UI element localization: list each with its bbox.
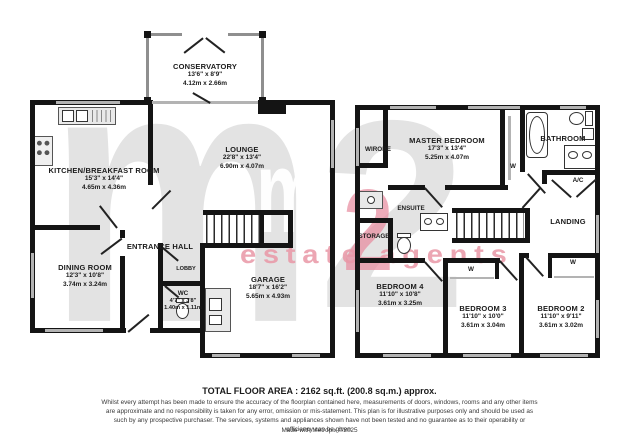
label-bedroom3-wardrobe: W [468, 266, 474, 274]
window [356, 290, 359, 332]
cistern [585, 111, 593, 126]
post [144, 97, 151, 104]
wall [443, 258, 500, 263]
basin-icon [568, 151, 578, 159]
toilet-icon [397, 237, 411, 254]
window [596, 215, 599, 253]
wall [452, 208, 530, 213]
window [596, 300, 599, 338]
window [383, 354, 431, 357]
window [540, 354, 588, 357]
room-label-bedroom3: BEDROOM 3 11'10" x 10'0" 3.61m x 3.04m [459, 304, 506, 330]
room-label-storage: STORAGE [358, 233, 389, 241]
room-label-kitchen: KITCHEN/BREAKFAST ROOM 15'3" x 14'4" 4.6… [48, 166, 159, 192]
wall [30, 225, 100, 230]
window [45, 329, 103, 332]
toilet-icon [569, 112, 584, 125]
post [259, 31, 266, 38]
fireplace [258, 105, 286, 114]
wall [443, 258, 448, 358]
wall [158, 243, 163, 333]
room-label-lobby: LOBBY [176, 266, 196, 273]
room-label-airing-cupboard: A/C [573, 177, 584, 185]
room-label-conservatory: CONSERVATORY 13'6" x 8'9" 4.12m x 2.66m [173, 62, 237, 88]
metropix-credit: Made with Metropix ©2025 [0, 427, 639, 434]
window [463, 354, 511, 357]
window [356, 128, 359, 166]
garage-door [292, 354, 320, 357]
wall [519, 253, 524, 358]
sink-icon [76, 110, 88, 122]
basin-icon [582, 151, 592, 159]
total-floor-area: TOTAL FLOOR AREA : 2162 sq.ft. (200.8 sq… [0, 386, 639, 396]
wall [158, 328, 205, 333]
basin-icon [436, 218, 444, 225]
garage-door [212, 354, 240, 357]
wall [203, 210, 293, 215]
window [56, 101, 120, 104]
room-label-entrance-hall: ENTRANCE HALL [127, 242, 193, 251]
stairs-icon [456, 213, 524, 238]
wall [120, 256, 125, 333]
room-label-dining: DINING ROOM 12'3" x 10'8" 3.74m x 3.24m [58, 263, 112, 289]
door [522, 188, 541, 208]
wall [120, 230, 125, 238]
wall [548, 257, 552, 278]
wall [445, 185, 508, 190]
window [468, 106, 520, 109]
wall [542, 170, 547, 184]
room-label-bedroom2: BEDROOM 2 11'10" x 9'11" 3.61m x 3.02m [537, 304, 584, 330]
wall [383, 105, 388, 167]
room-label-bedroom4: BEDROOM 4 11'10" x 10'8" 3.61m x 3.25m [376, 282, 423, 308]
wall [203, 243, 293, 248]
wall [546, 170, 600, 175]
room-label-wc: WC 4'7" x 3'8" 1.40m x 1.11m [164, 290, 202, 312]
room-label-lounge: LOUNGE 22'8" x 13'4" 6.90m x 4.07m [220, 145, 264, 171]
hob-icon [33, 136, 53, 166]
post [144, 31, 151, 38]
door [551, 179, 571, 198]
wall [452, 238, 530, 243]
conservatory-wall [146, 33, 149, 103]
door-opening [182, 32, 228, 37]
label-bedroom2-wardrobe: W [570, 259, 576, 267]
sink-icon [209, 315, 222, 325]
wall [355, 258, 425, 263]
window [31, 253, 34, 298]
door [525, 256, 544, 276]
watermark-2-overlay: 2 [343, 172, 393, 288]
basin-icon [424, 218, 432, 225]
wall [525, 208, 530, 243]
wall [355, 218, 390, 223]
sink-icon [209, 298, 222, 311]
post [259, 97, 266, 104]
wall [520, 110, 525, 172]
wall [495, 262, 499, 279]
room-label-bathroom: BATHROOM [540, 134, 585, 143]
room-label-master-bedroom: MASTER BEDROOM 17'3" x 13'4" 5.25m x 4.0… [409, 136, 485, 162]
window [390, 106, 436, 109]
window [560, 106, 586, 109]
wardrobe-doors [450, 277, 494, 279]
floorplan-canvas: m 2 m 2 estate agents [0, 0, 639, 437]
wall [548, 253, 600, 258]
wall [30, 100, 35, 333]
wall [260, 212, 264, 245]
drainer-icon [92, 110, 113, 122]
wardrobe-doors [554, 276, 594, 278]
door-sill [152, 101, 258, 104]
label-master-wardrobe: W [510, 163, 516, 171]
wall [355, 163, 388, 168]
room-label-ensuite: ENSUITE [397, 205, 424, 213]
sink-icon [62, 110, 74, 122]
room-label-landing: LANDING [550, 217, 586, 226]
stairs-icon [206, 215, 260, 243]
conservatory-wall [261, 33, 264, 103]
room-label-wirobe: WIROBE [365, 146, 391, 154]
wall [500, 110, 505, 188]
cistern [397, 233, 411, 238]
room-label-garage: GARAGE 18'7" x 16'2" 5.65m x 4.93m [246, 275, 290, 301]
shower-drain [367, 196, 375, 204]
window [331, 120, 334, 168]
wall [388, 185, 425, 190]
